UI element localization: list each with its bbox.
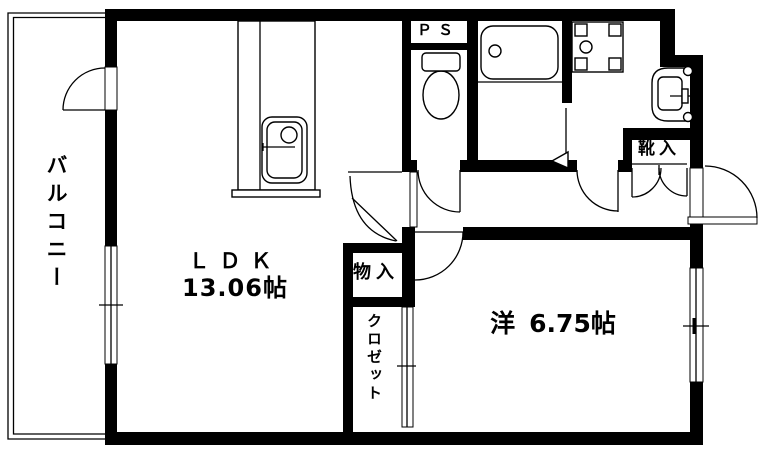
- ldk-size-label: 13.06帖: [168, 276, 302, 300]
- balcony-label: バルコニー: [45, 154, 66, 324]
- wash-basin-icon: [652, 67, 693, 122]
- floorplan: バルコニー ＰＳ ＬＤＫ 13.06帖 洋6.75帖 靴入 物入 クロゼット: [0, 0, 764, 455]
- bathtub-icon: [478, 26, 562, 82]
- shoe-cabinet-label: 靴入: [631, 141, 687, 158]
- balcony-door: [63, 67, 117, 110]
- closet-sliding-door: [397, 307, 416, 427]
- ldk-label: ＬＤＫ: [180, 251, 290, 272]
- washroom-door: [577, 170, 618, 212]
- closet-label: クロゼット: [366, 313, 381, 431]
- western-room-label: 洋6.75帖: [458, 311, 648, 336]
- toilet-door: [418, 170, 460, 212]
- bathroom-door: [552, 108, 568, 168]
- western-room-window: [683, 268, 709, 382]
- western-room-door: [415, 232, 463, 280]
- kitchen-sink-icon: [232, 21, 320, 197]
- storage-label: 物入: [347, 264, 405, 282]
- shoe-cabinet-doors: [632, 164, 687, 197]
- washing-machine-pan-icon: [572, 22, 623, 72]
- ldk-balcony-window: [99, 246, 123, 364]
- toilet-icon: [422, 53, 460, 119]
- pipe-space-label: ＰＳ: [408, 23, 468, 38]
- entrance-door: [688, 166, 757, 224]
